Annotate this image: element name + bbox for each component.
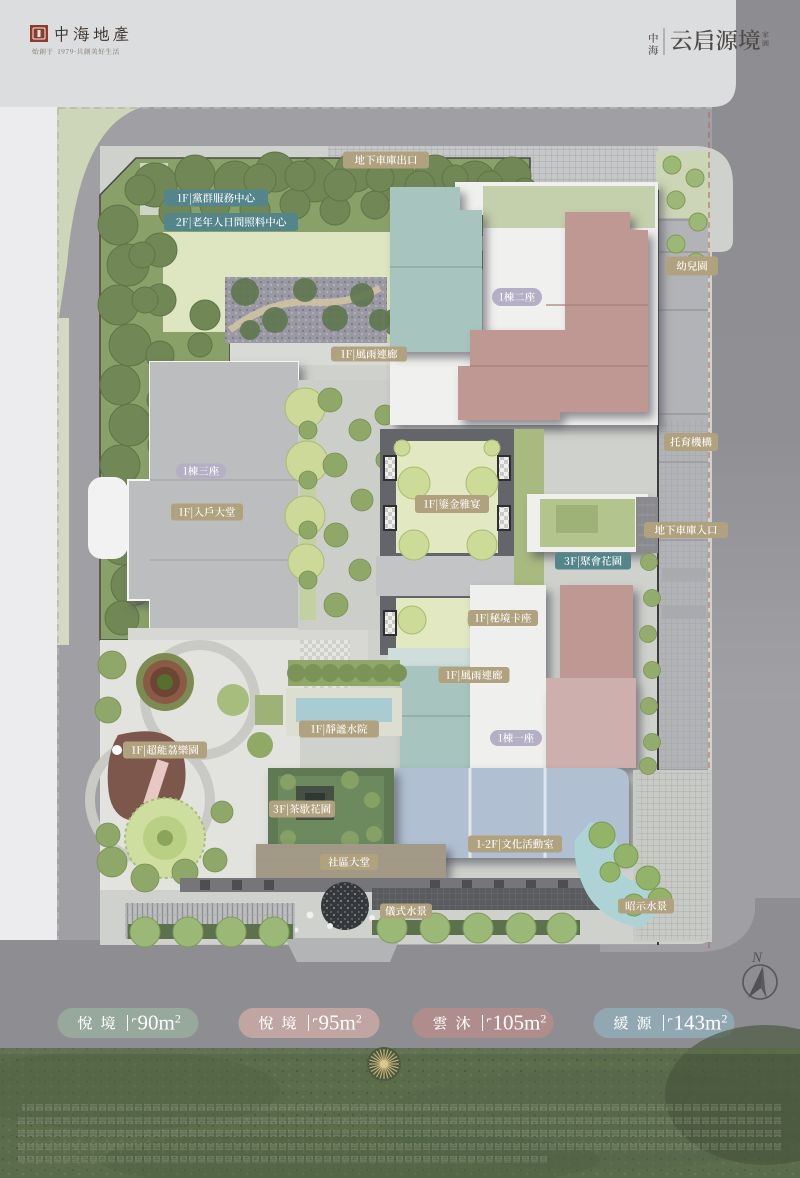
svg-text:90m2: 90m2 xyxy=(138,1011,181,1035)
svg-text:N: N xyxy=(751,950,763,966)
svg-text:105m2: 105m2 xyxy=(493,1011,547,1035)
svg-text:95m2: 95m2 xyxy=(319,1011,362,1035)
svg-text:143m2: 143m2 xyxy=(674,1011,728,1035)
